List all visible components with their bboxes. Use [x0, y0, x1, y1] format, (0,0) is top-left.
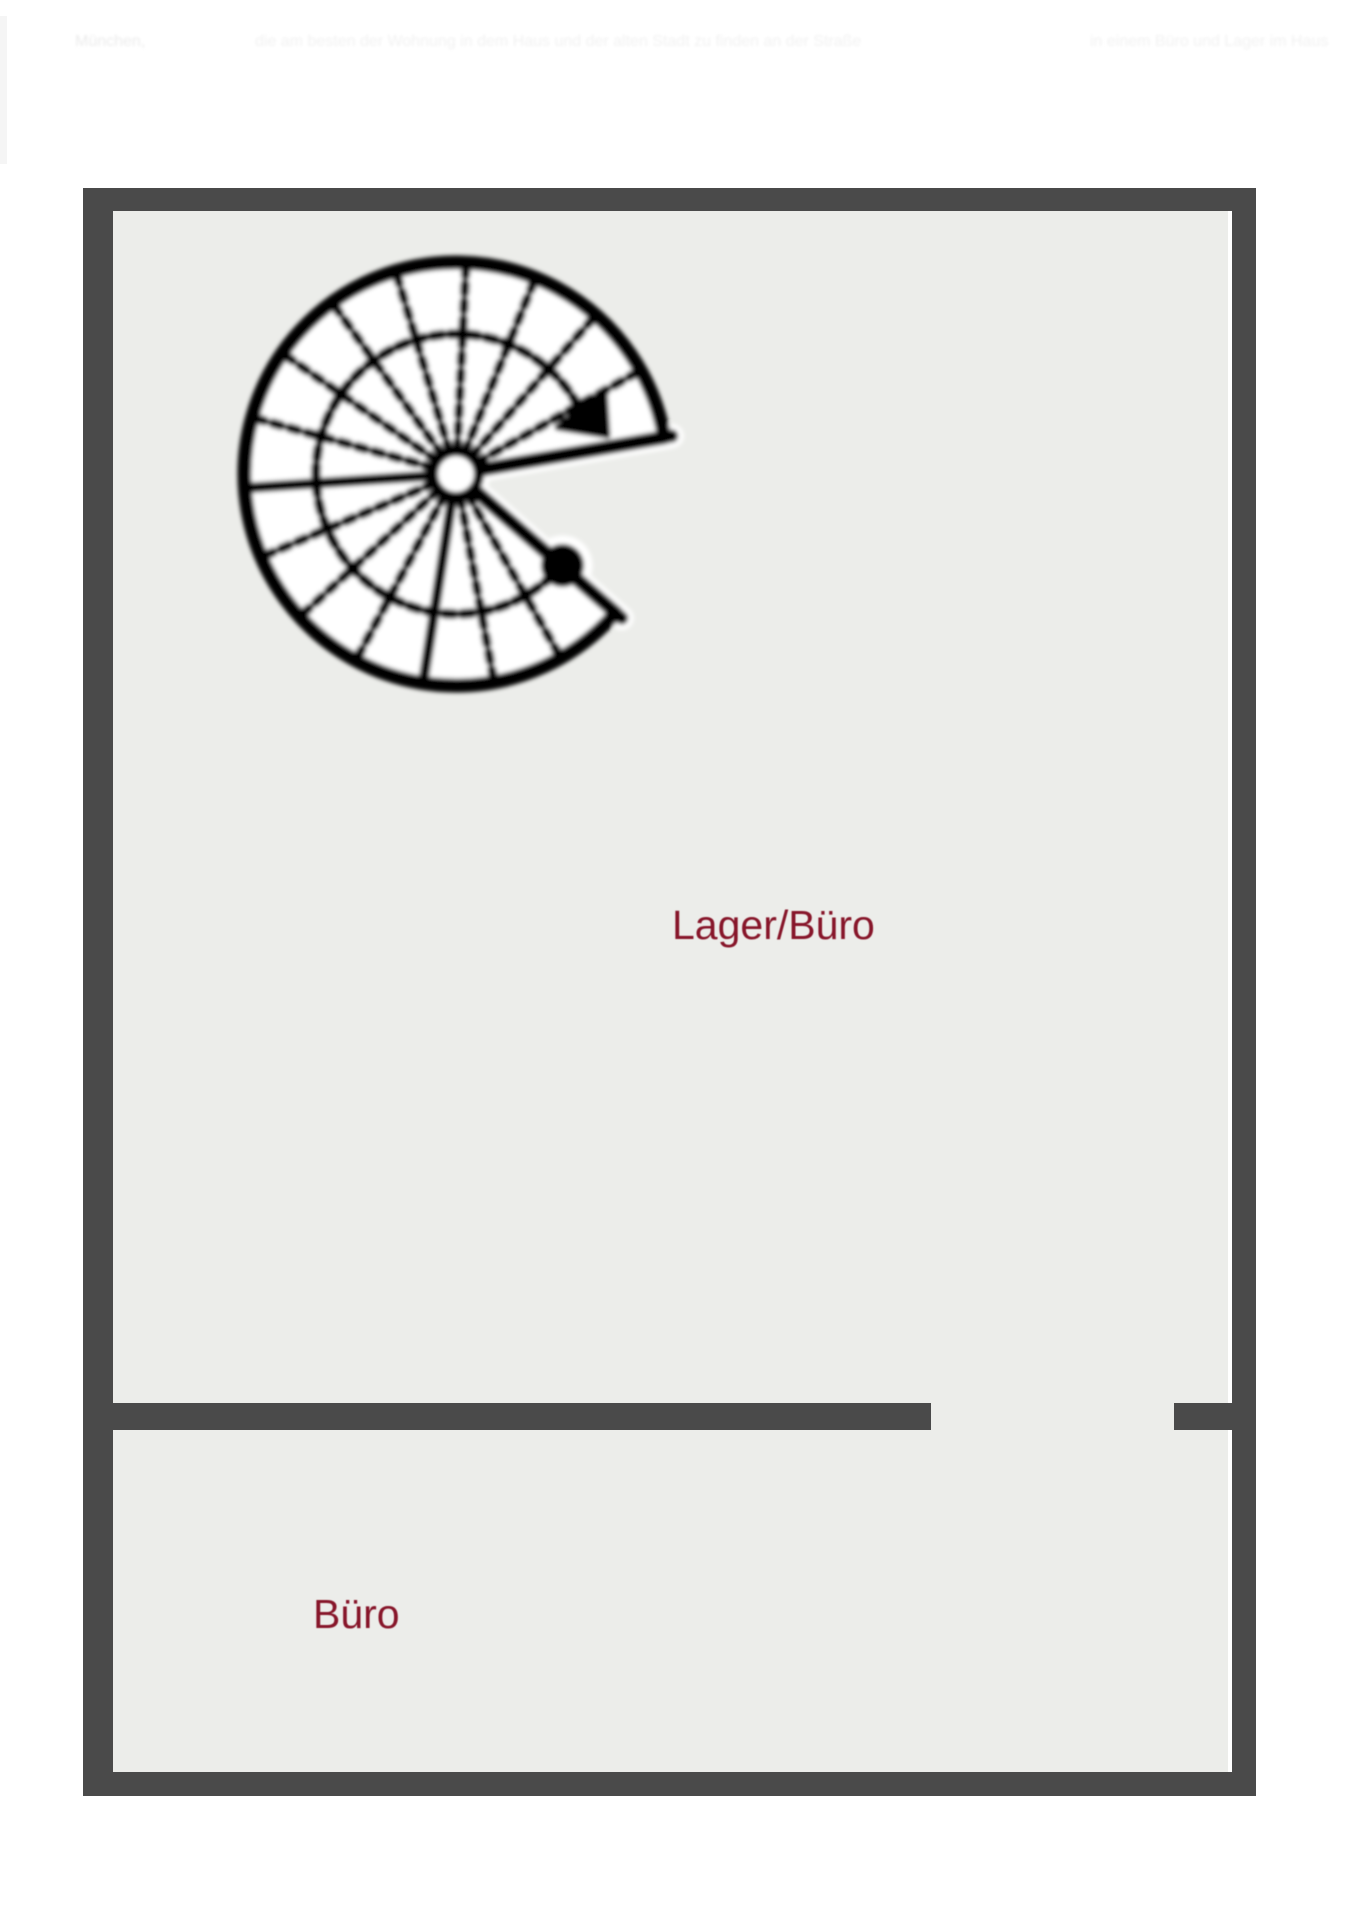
svg-text:München,: München,: [75, 33, 145, 50]
svg-text:Büro: Büro: [313, 1591, 400, 1637]
svg-text:in einem Büro und Lager im Hau: in einem Büro und Lager im Haus: [1090, 33, 1328, 50]
svg-text:Lager/Büro: Lager/Büro: [672, 902, 875, 948]
svg-text:die am besten der Wohnung in d: die am besten der Wohnung in dem Haus un…: [255, 33, 861, 50]
